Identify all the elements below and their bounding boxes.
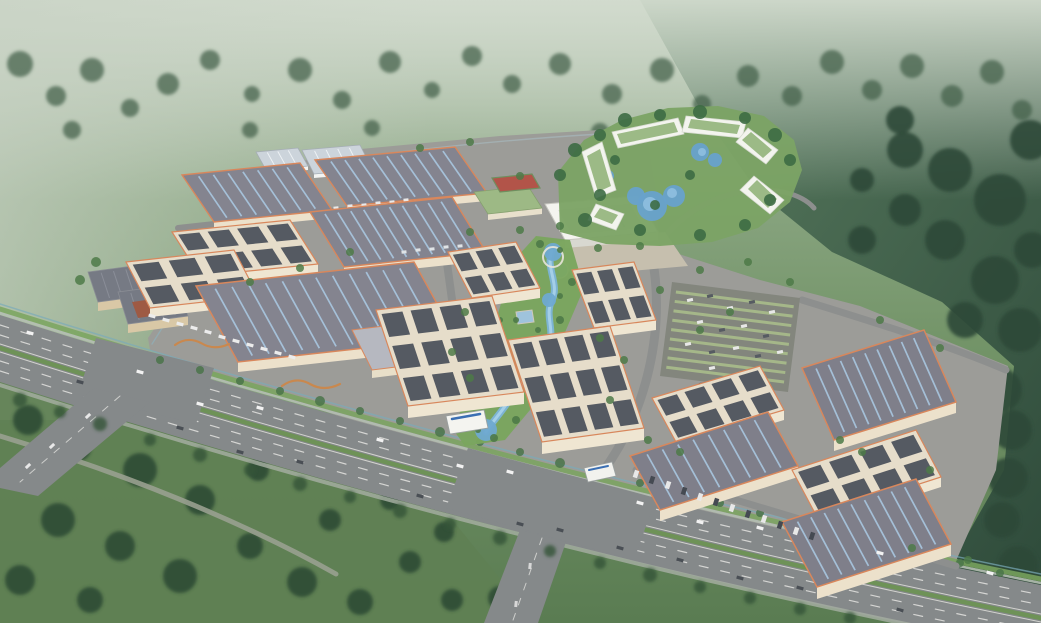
aerial-render-industrial-park xyxy=(0,0,1041,623)
sports-courts xyxy=(492,174,540,192)
park-fountain-square xyxy=(516,310,534,324)
scene xyxy=(0,0,1041,623)
scene-root xyxy=(0,0,1041,623)
